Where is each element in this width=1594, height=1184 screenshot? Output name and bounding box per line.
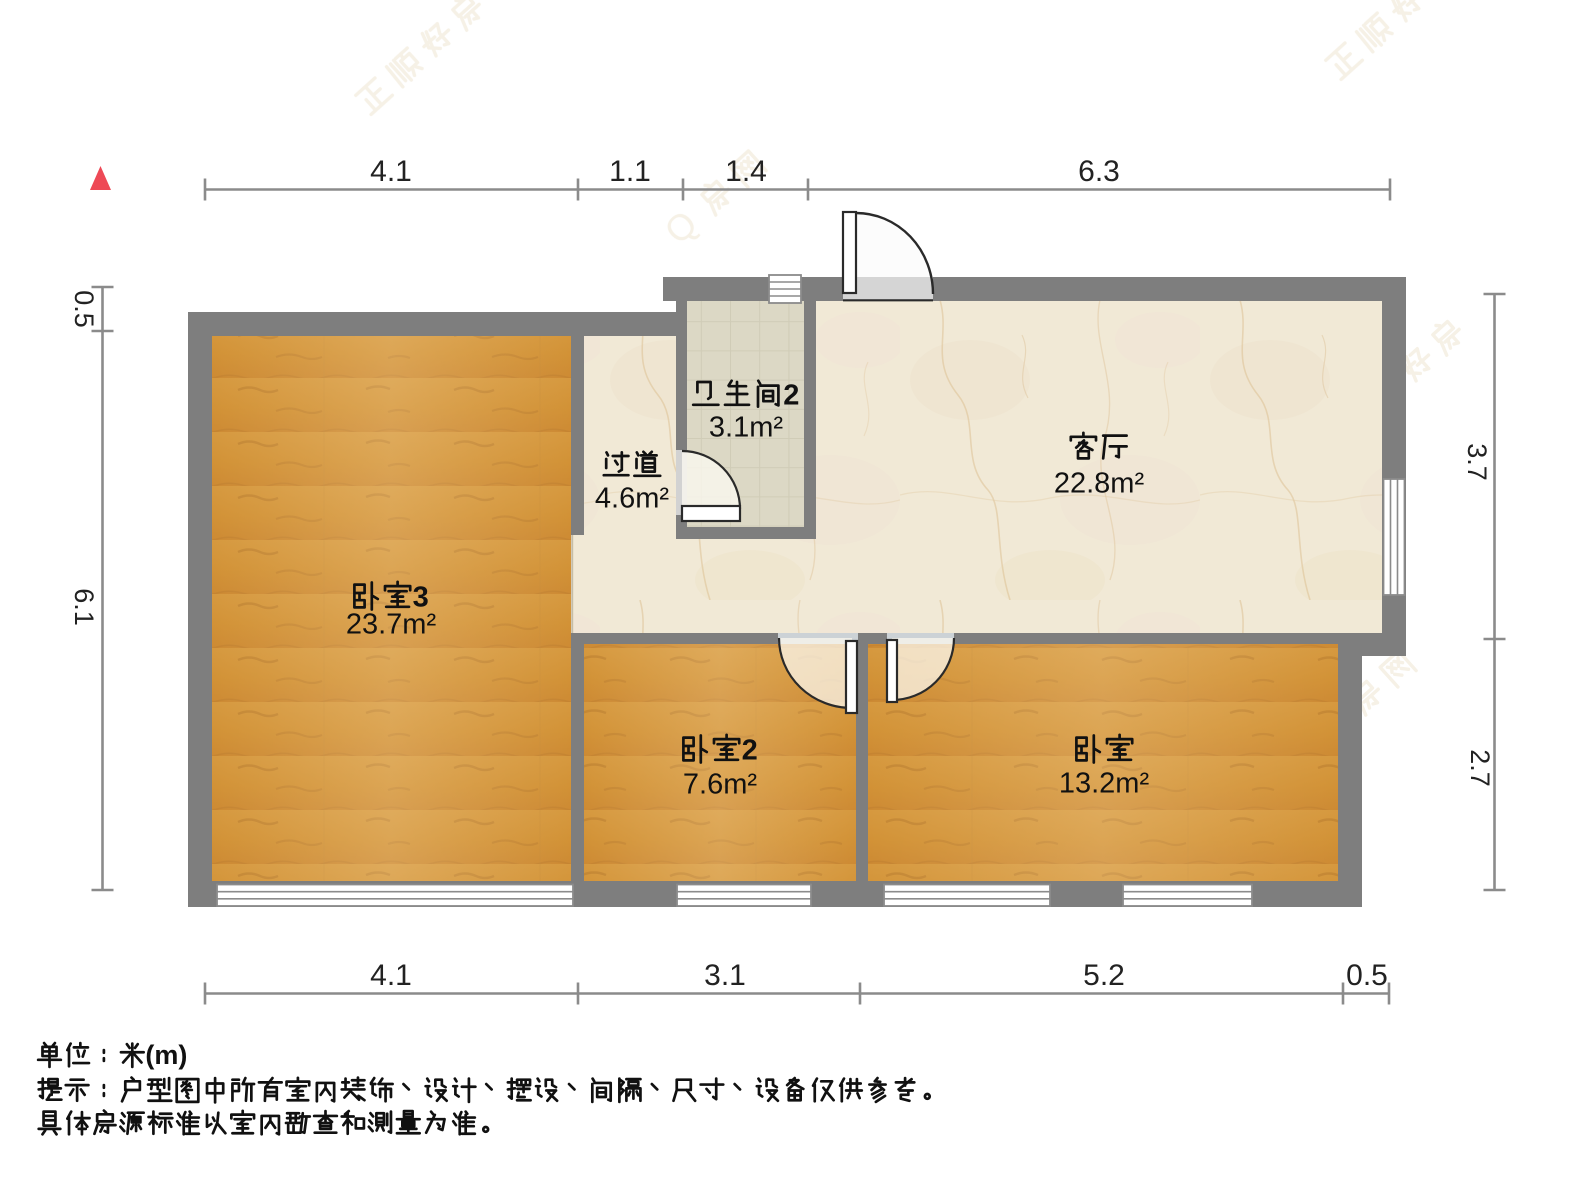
svg-text:7.6m²: 7.6m² — [683, 769, 757, 801]
svg-text:6.1: 6.1 — [69, 588, 99, 626]
svg-text:13.2m²: 13.2m² — [1059, 768, 1150, 800]
svg-text:0.5: 0.5 — [69, 290, 99, 328]
svg-text:0.5: 0.5 — [1346, 959, 1388, 992]
svg-text:1.4: 1.4 — [725, 155, 767, 188]
svg-text:6.3: 6.3 — [1078, 155, 1120, 188]
svg-text:23.7m²: 23.7m² — [346, 609, 437, 641]
svg-text:1.1: 1.1 — [609, 155, 651, 188]
svg-text:4.1: 4.1 — [370, 959, 412, 992]
svg-text:3.1m²: 3.1m² — [709, 412, 783, 444]
svg-text:2: 2 — [783, 380, 799, 412]
svg-text:2.7: 2.7 — [1465, 749, 1495, 787]
svg-text:5.2: 5.2 — [1083, 959, 1125, 992]
svg-text:4.6m²: 4.6m² — [595, 483, 669, 515]
svg-text:22.8m²: 22.8m² — [1054, 468, 1145, 500]
svg-text:(m): (m) — [145, 1040, 187, 1070]
svg-text:3.1: 3.1 — [704, 959, 746, 992]
svg-text:3.7: 3.7 — [1462, 443, 1492, 481]
svg-text:2: 2 — [742, 735, 758, 767]
svg-text:4.1: 4.1 — [370, 155, 412, 188]
